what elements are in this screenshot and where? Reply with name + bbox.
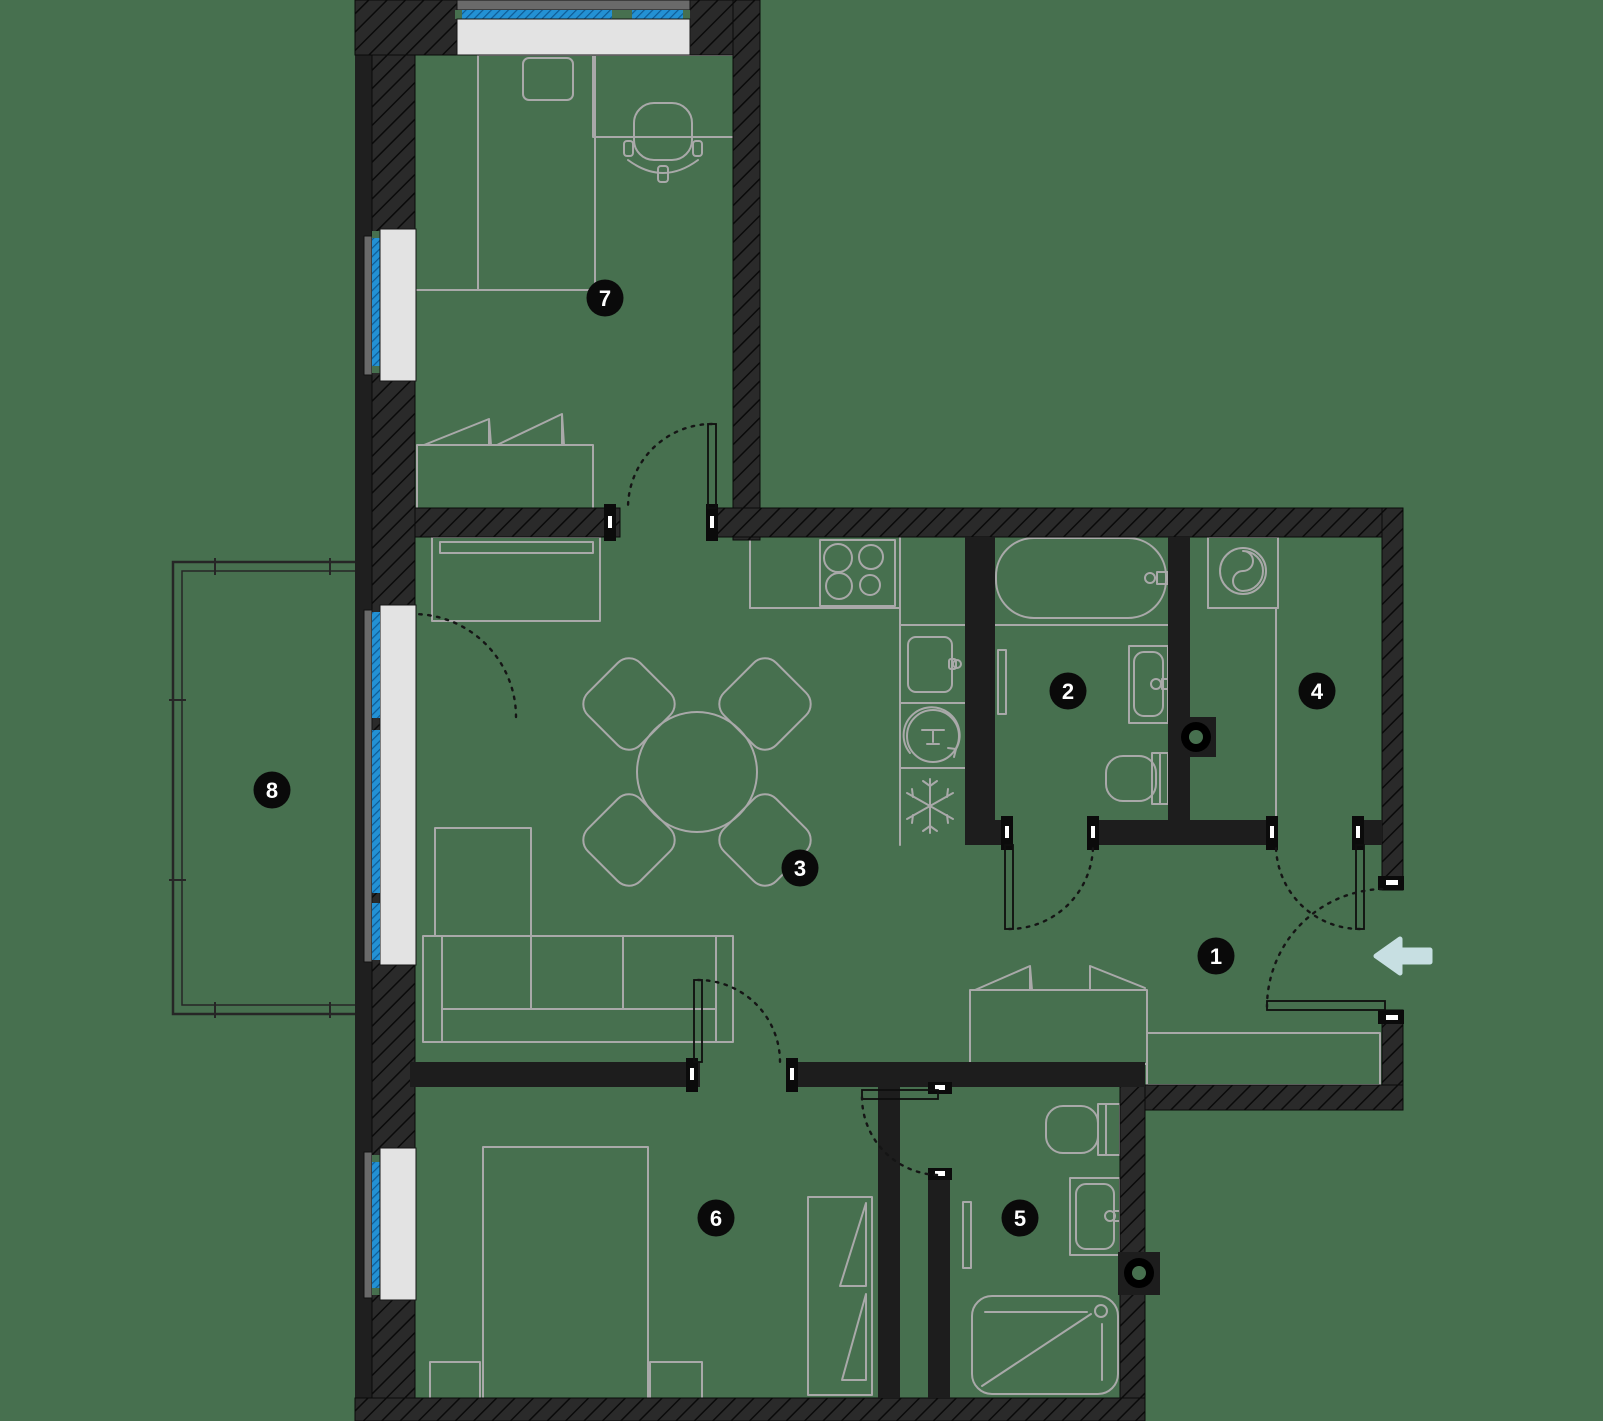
balcony-slab (457, 0, 690, 10)
floor-plan-svg: 1 2 3 4 5 6 7 8 (0, 0, 1603, 1421)
pipe-shaft-icon (1176, 717, 1216, 757)
room-marker-6: 6 (698, 1200, 735, 1237)
room-marker-1: 1 (1198, 938, 1235, 975)
room-marker-8: 8 (254, 772, 291, 809)
window-glass (372, 1155, 380, 1295)
room-number: 5 (1014, 1206, 1026, 1231)
main-horizontal-wall (715, 508, 1382, 537)
room7-right-wall (733, 0, 760, 540)
floor-plan: 1 2 3 4 5 6 7 8 (0, 0, 1603, 1421)
background (0, 0, 1603, 1421)
room5-east-wall (1120, 1085, 1145, 1398)
room-number: 2 (1062, 679, 1074, 704)
room-number: 8 (266, 778, 278, 803)
room-marker-7: 7 (587, 280, 624, 317)
room-marker-4: 4 (1299, 673, 1336, 710)
room-marker-5: 5 (1002, 1200, 1039, 1237)
window-sill (380, 605, 416, 965)
right-exterior-wall-upper (1382, 508, 1403, 890)
window-sill (380, 229, 416, 381)
window-glass (455, 10, 690, 19)
balcony-door-glass (372, 612, 380, 718)
window-sill (457, 19, 690, 55)
left-window-room6 (364, 1148, 416, 1300)
pipe-shaft-icon (1118, 1252, 1160, 1295)
hallway-bottom-wall (1120, 1085, 1403, 1110)
room-number: 3 (794, 856, 806, 881)
window-glass (372, 730, 380, 893)
window-glass (372, 903, 380, 960)
left-window-room7 (364, 229, 416, 381)
room-marker-3: 3 (782, 850, 819, 887)
top-window (455, 0, 690, 55)
bottom-exterior-wall (355, 1398, 1145, 1421)
room-number: 1 (1210, 944, 1222, 969)
room7-bottom-wall (415, 508, 620, 537)
window-glass (372, 231, 380, 373)
room-number: 6 (710, 1206, 722, 1231)
room-number: 7 (599, 286, 611, 311)
left-window-living (364, 605, 416, 965)
room-marker-2: 2 (1050, 673, 1087, 710)
window-sill (380, 1148, 416, 1300)
room-number: 4 (1311, 679, 1324, 704)
